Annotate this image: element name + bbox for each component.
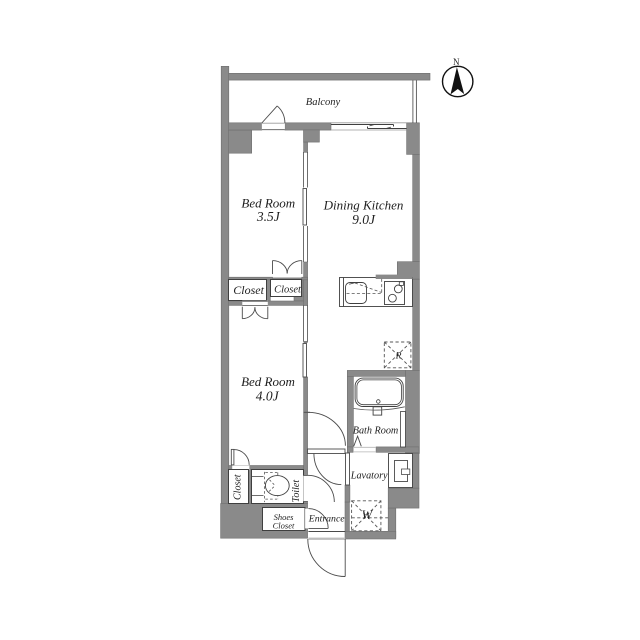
- svg-text:Entrance: Entrance: [308, 513, 346, 524]
- svg-text:Lavatory: Lavatory: [350, 470, 388, 481]
- svg-text:Bed Room: Bed Room: [241, 374, 295, 389]
- svg-text:Closet: Closet: [232, 474, 243, 500]
- svg-text:Closet: Closet: [274, 284, 302, 295]
- svg-text:4.0J: 4.0J: [256, 389, 280, 404]
- svg-text:Dining Kitchen: Dining Kitchen: [323, 197, 404, 212]
- svg-text:Closet: Closet: [233, 283, 264, 297]
- svg-text:Closet: Closet: [273, 521, 295, 531]
- svg-text:3.5J: 3.5J: [256, 209, 281, 224]
- svg-text:Bath Room: Bath Room: [353, 426, 399, 437]
- svg-text:9.0J: 9.0J: [352, 212, 376, 227]
- svg-text:W: W: [362, 508, 374, 522]
- svg-text:Toilet: Toilet: [291, 480, 302, 503]
- svg-text:R: R: [395, 352, 402, 362]
- svg-text:Balcony: Balcony: [306, 97, 341, 108]
